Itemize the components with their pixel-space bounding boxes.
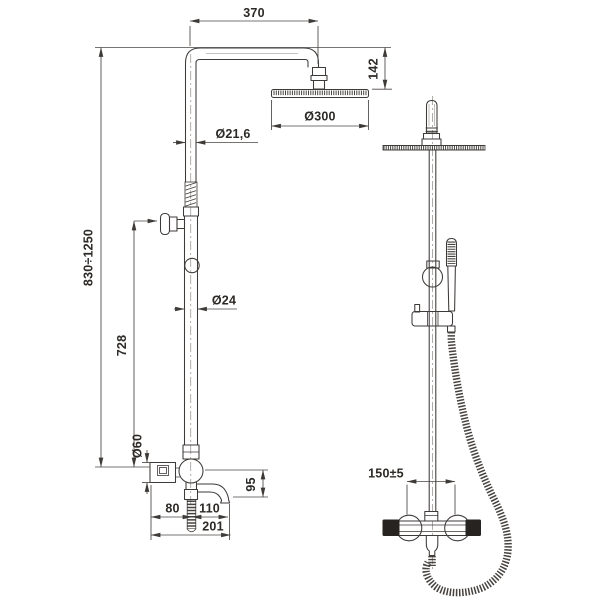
valve-boss-left bbox=[396, 515, 422, 541]
front-dimensions: 370 142 Ø300 Ø21,6 830÷1250 728 bbox=[82, 6, 393, 540]
diverter-base-lower bbox=[422, 139, 441, 146]
dim-label-spout-drop: 95 bbox=[244, 477, 258, 491]
connector-lower bbox=[314, 81, 325, 90]
dim-label-head-drop: 142 bbox=[367, 58, 381, 79]
arm-inner-contour bbox=[196, 60, 308, 68]
dim-label-column-height-range: 830÷1250 bbox=[82, 229, 96, 286]
hose-coupling bbox=[448, 326, 456, 332]
dim-lower-pipe-diameter: Ø24 bbox=[174, 294, 237, 310]
valve-top-collar bbox=[425, 512, 438, 522]
dim-label-wall-to-riser: 80 bbox=[165, 502, 179, 516]
dim-arm-reach: 370 bbox=[190, 6, 318, 64]
dim-label-head-diameter: Ø300 bbox=[304, 110, 335, 124]
dim-label-valve-body-diameter: Ø60 bbox=[131, 434, 145, 458]
hose-stub bbox=[187, 500, 196, 532]
dim-head-diameter: Ø300 bbox=[272, 100, 369, 130]
side-valve bbox=[383, 512, 482, 567]
dim-label-lower-pipe-diameter: Ø24 bbox=[212, 294, 236, 308]
dim-holder-to-valve: 728 bbox=[115, 221, 157, 467]
arm-outer-contour bbox=[186, 48, 319, 67]
hand-shower-holder bbox=[161, 214, 185, 235]
dim-label-riser-to-spout: 110 bbox=[199, 502, 220, 516]
spout-tip bbox=[221, 501, 230, 504]
holder-cone bbox=[170, 217, 178, 231]
diverter-base-upper bbox=[424, 134, 440, 140]
riser-pipe bbox=[183, 54, 199, 505]
dim-label-holder-to-valve: 728 bbox=[115, 335, 129, 356]
dim-column-height-range: 830÷1250 bbox=[82, 48, 151, 468]
dim-inlet-spacing: 150±5 bbox=[368, 467, 455, 515]
flex-hose bbox=[426, 332, 508, 593]
dim-label-wall-to-spout: 201 bbox=[202, 520, 223, 534]
hand-shower-head bbox=[447, 239, 457, 267]
drawing-canvas: 370 142 Ø300 Ø21,6 830÷1250 728 bbox=[0, 0, 600, 600]
dim-label-arm-reach: 370 bbox=[243, 6, 264, 20]
front-view bbox=[150, 48, 369, 532]
dim-label-inlet-spacing: 150±5 bbox=[368, 467, 404, 481]
hose-stub-cap bbox=[187, 529, 196, 532]
spout bbox=[198, 484, 230, 503]
side-hand-shower bbox=[447, 239, 457, 312]
hand-shower-handle bbox=[448, 266, 456, 311]
valve-handle-right bbox=[466, 520, 482, 537]
valve-outlet bbox=[426, 536, 438, 556]
side-view bbox=[383, 96, 509, 593]
shower-arm bbox=[186, 48, 319, 67]
side-hose bbox=[426, 332, 508, 593]
side-diverter-handle bbox=[422, 101, 441, 146]
side-head-plate bbox=[383, 146, 485, 151]
side-dimensions: 150±5 bbox=[368, 467, 455, 515]
head-connector bbox=[311, 68, 327, 90]
holder-pin bbox=[415, 305, 420, 313]
spout-bottom-edge bbox=[198, 492, 222, 501]
technical-drawing: 370 142 Ø300 Ø21,6 830÷1250 728 bbox=[0, 0, 600, 600]
mixer-valve bbox=[150, 459, 203, 500]
valve-port-inner bbox=[160, 468, 167, 474]
connector-nut bbox=[311, 76, 327, 81]
holder-flange bbox=[161, 214, 170, 235]
dim-label-upper-pipe-diameter: Ø21,6 bbox=[215, 127, 250, 141]
valve-handle-left bbox=[383, 520, 400, 537]
overhead-shower-head bbox=[272, 90, 369, 98]
connector-upper bbox=[313, 68, 326, 76]
holder-neck bbox=[177, 220, 185, 229]
